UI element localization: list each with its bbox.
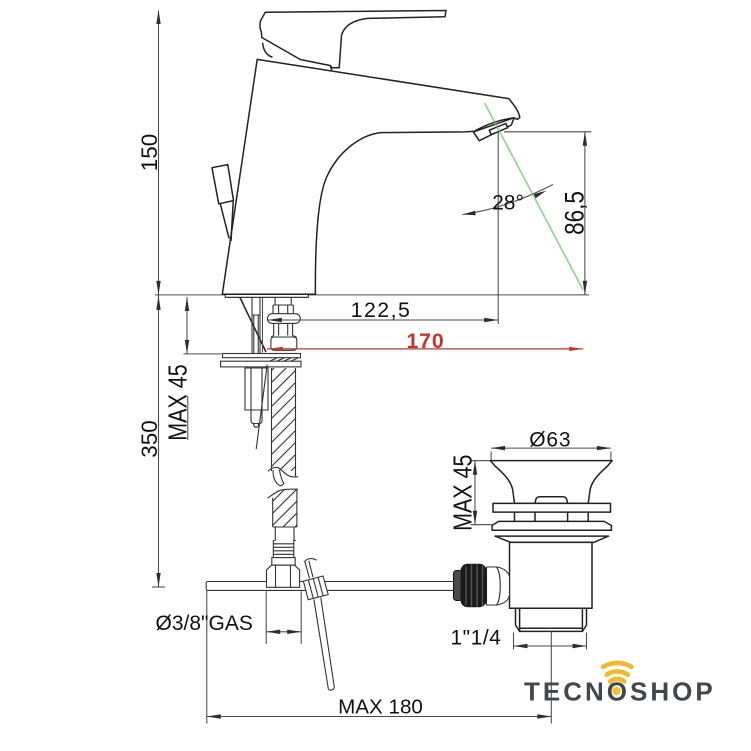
svg-text:28°: 28° <box>492 192 524 215</box>
svg-text:150: 150 <box>137 134 162 172</box>
svg-text:86,5: 86,5 <box>561 191 590 235</box>
svg-text:MAX 45: MAX 45 <box>450 454 478 530</box>
svg-text:170: 170 <box>407 329 445 353</box>
svg-text:MAX 45: MAX 45 <box>165 364 193 440</box>
svg-text:122,5: 122,5 <box>351 298 412 322</box>
svg-text:Ø63: Ø63 <box>529 429 571 452</box>
svg-text:Ø3/8"GAS: Ø3/8"GAS <box>156 612 253 635</box>
svg-text:1"1/4: 1"1/4 <box>451 627 502 650</box>
svg-text:350: 350 <box>137 420 162 458</box>
svg-text:MAX 180: MAX 180 <box>338 696 423 719</box>
